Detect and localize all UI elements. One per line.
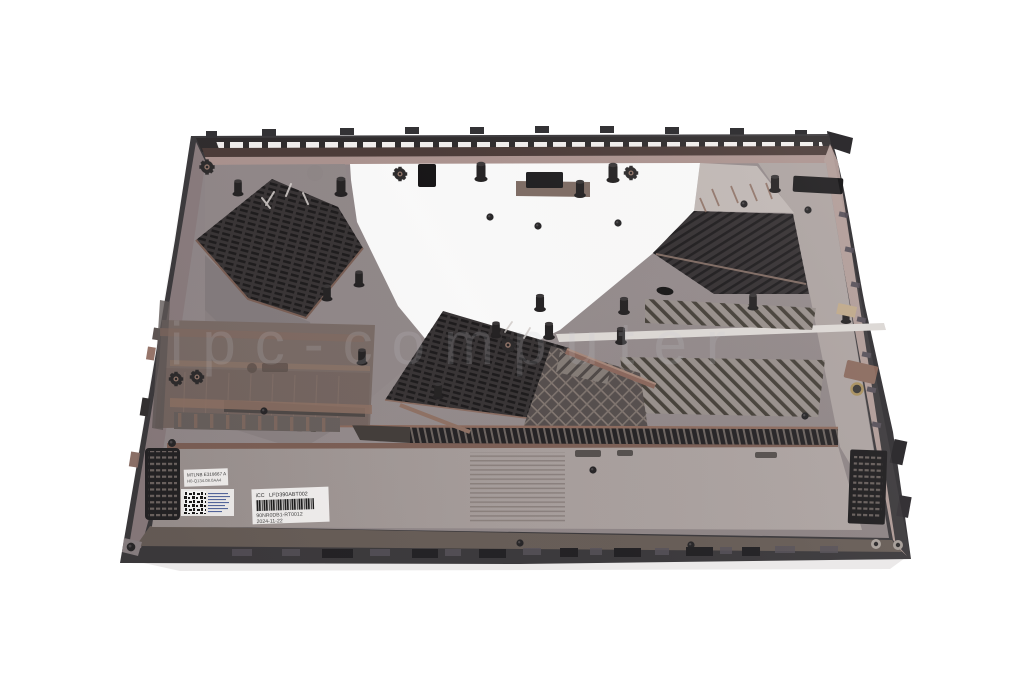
svg-text:ipc-computer: ipc-computer	[170, 310, 745, 377]
